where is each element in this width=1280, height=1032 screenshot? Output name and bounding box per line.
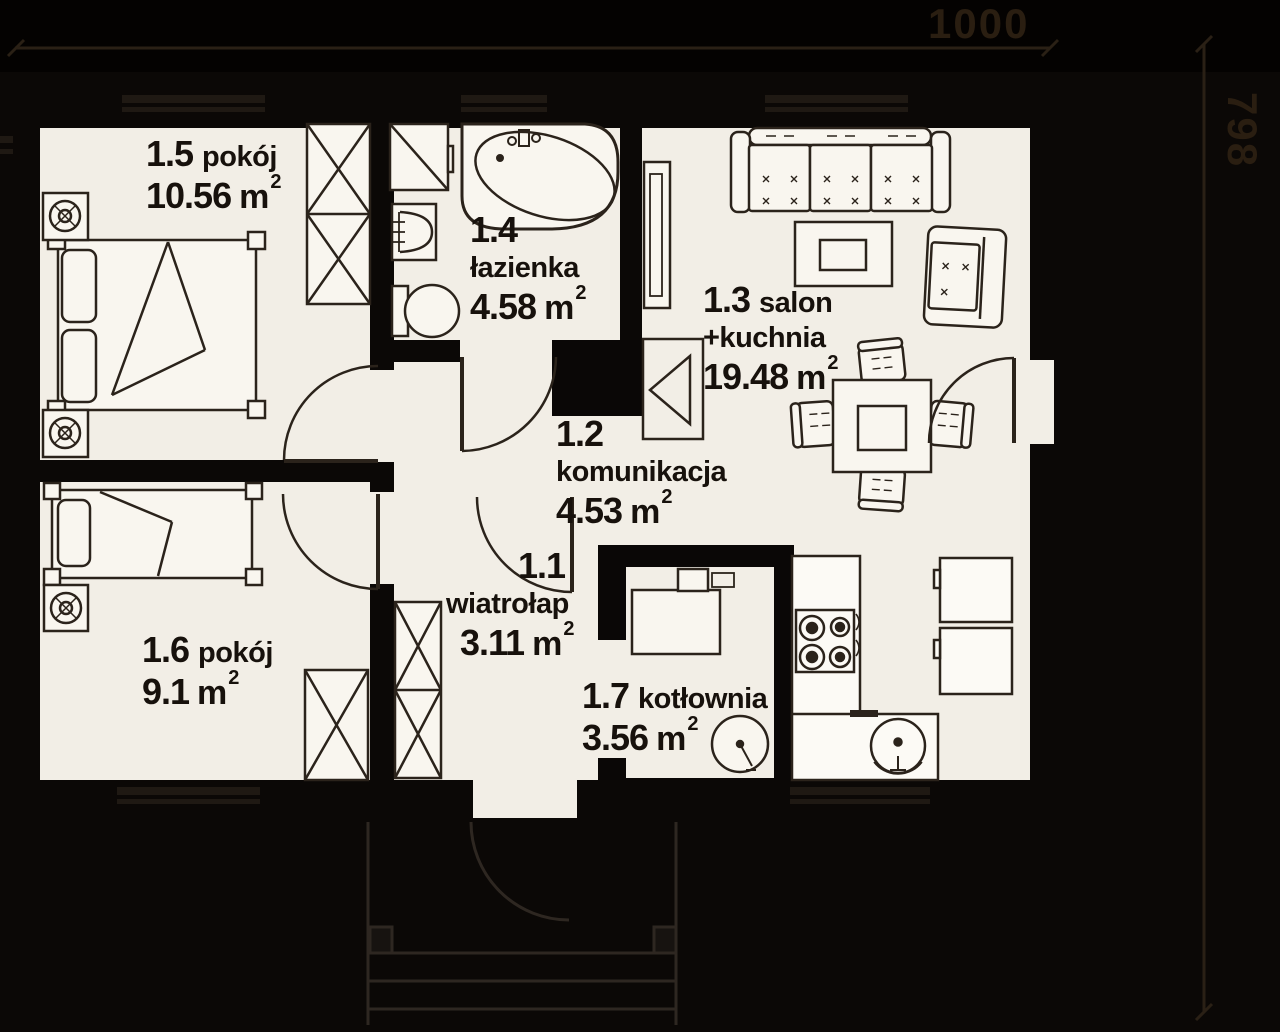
area-unit-sup: 2 [270,171,281,193]
area-unit: m [656,720,685,758]
dimension-height: 798 [1218,92,1266,168]
room-area: 19.48 [703,356,788,397]
entry-steps [368,822,676,1025]
floor-plan-canvas: 1.5pokój 10.56m2 1.4 łazienka 4.58m2 1.3… [0,0,1280,1032]
room-number: 1.6 [142,629,189,670]
room-number: 1.1 [518,545,565,586]
room-area: 4.58 [470,286,536,327]
area-unit-sup: 2 [687,713,698,735]
room-name-2: +kuchnia [703,322,826,354]
chair [858,338,906,384]
nightstand-lamp [43,410,88,457]
dimension-width: 1000 [928,0,1029,48]
area-unit-sup: 2 [228,667,239,689]
room-area: 4.53 [556,490,622,531]
room-area: 3.56 [582,717,648,758]
room-number: 1.3 [703,279,750,320]
label-room-1-3: 1.3salon +kuchnia 19.48m2 [703,282,836,401]
room-name: kotłownia [638,683,767,715]
double-bed [48,232,265,418]
room-name: salon [759,287,832,319]
fridge [934,558,1012,694]
wardrobe [305,670,368,780]
area-unit-sup: 2 [575,282,586,304]
room-name: pokój [202,141,277,173]
chair [928,401,974,448]
room-number: 1.5 [146,133,193,174]
sofa [731,128,950,212]
area-unit: m [197,674,226,712]
toilet [392,285,459,337]
chair [791,401,836,448]
room-name: pokój [198,637,273,669]
door-arc-room16 [283,494,378,589]
boiler [632,569,734,654]
area-unit-sup: 2 [563,618,574,640]
room-area: 9.1 [142,671,189,712]
room-name: wiatrołap [446,588,569,620]
area-unit: m [796,359,825,397]
label-room-1-1: 1.1 wiatrołap 3.11m2 [446,548,572,667]
area-unit: m [239,178,268,216]
label-room-1-7: 1.7kotłownia 3.56m2 [582,678,767,762]
label-room-1-6: 1.6pokój 9.1m2 [142,632,273,716]
label-room-1-4: 1.4 łazienka 4.58m2 [470,212,584,331]
armchair [924,226,1007,328]
chair [858,467,905,512]
room-number: 1.2 [556,413,603,454]
room-number: 1.7 [582,675,629,716]
area-unit-sup: 2 [661,486,672,508]
tv-cabinet [644,162,670,308]
coffee-table [795,222,892,286]
washbasin [392,204,436,260]
label-room-1-5: 1.5pokój 10.56m2 [146,136,279,220]
wardrobe [307,124,370,304]
area-unit: m [630,493,659,531]
room-area: 3.11 [460,622,524,663]
shower [390,124,453,190]
wardrobe [395,602,441,778]
label-room-1-2: 1.2 komunikacja 4.53m2 [556,416,726,535]
nightstand-lamp [43,193,88,240]
door-arc-room15 [284,366,378,461]
area-unit-sup: 2 [827,352,838,374]
room-area: 10.56 [146,175,231,216]
door-arc-bathroom [462,357,556,451]
room-name: komunikacja [556,456,726,488]
nightstand-lamp [44,585,88,631]
room-name: łazienka [470,252,579,284]
single-bed [44,483,262,585]
area-unit: m [544,289,573,327]
room-number: 1.4 [470,209,517,250]
area-unit: m [532,625,561,663]
stove [796,610,859,672]
